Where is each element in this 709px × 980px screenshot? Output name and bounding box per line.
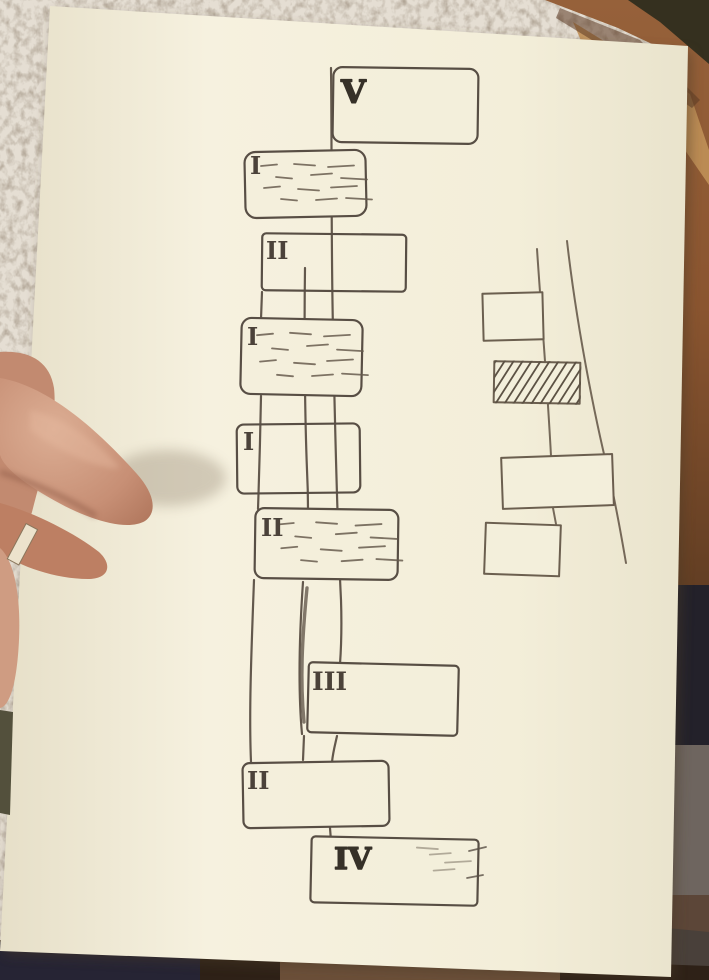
box-3-label: II [266,236,288,265]
box-8-label: II [247,766,269,795]
right-box-1 [482,292,543,341]
box-6-label: II [261,513,283,542]
box-4-label: I [247,322,258,351]
timeline-box-4 [240,318,363,397]
box-7-label: III [312,667,347,696]
box-5-label: I [243,427,254,456]
photo: V I II I I II III II IV [0,0,709,980]
box-2-label: I [250,151,261,180]
box-1-label: V [340,73,367,111]
photo-stage: V I II I I II III II IV [0,0,709,980]
right-box-3 [501,454,614,509]
right-box-4 [484,523,561,577]
box-9-label: IV [334,842,372,877]
timeline-box-2 [244,150,366,219]
